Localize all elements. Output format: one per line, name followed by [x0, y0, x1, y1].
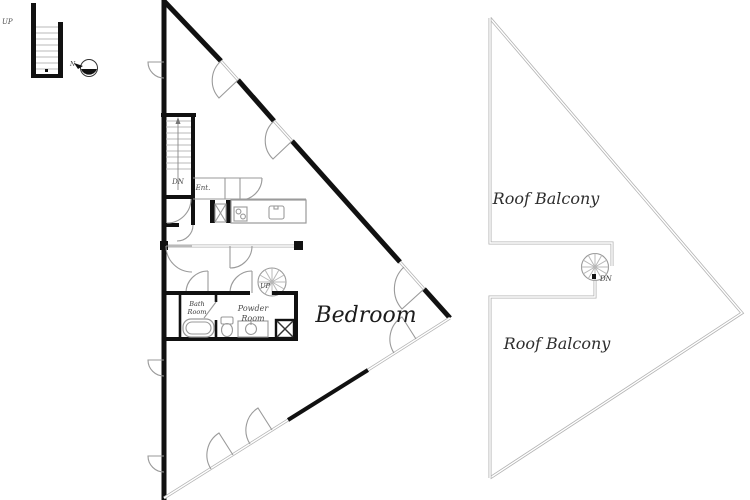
stair-door-arc [167, 199, 191, 223]
vanity-sink-icon [238, 321, 268, 337]
entrance-label: Ent. [195, 184, 211, 192]
roof-balcony-lower-label: Roof Balcony [503, 334, 612, 353]
kitchen-area [193, 199, 306, 223]
toilet-icon [221, 317, 233, 337]
legend-stair-treads [36, 27, 58, 69]
spiral-up-label: UP [260, 282, 270, 290]
roof-outline [490, 18, 742, 478]
bathroom-block: Bath Room Powder Room [162, 291, 298, 341]
bedroom-label: Bedroom [314, 303, 416, 328]
duct-shaft-icon [215, 204, 226, 222]
powder-room-label-2: Room [240, 314, 265, 323]
legend-stair: UP [2, 3, 63, 78]
shaft-icon [276, 320, 294, 338]
north-arrow-icon: N [69, 60, 98, 77]
bath-room-label-2: Room [187, 308, 207, 316]
window-swing-arcs [148, 61, 424, 472]
floor-plan-drawing: UP N [0, 0, 750, 500]
powder-room-label-1: Powder [237, 304, 270, 313]
bath-room-label-1: Bath [188, 300, 204, 308]
roof-balcony-upper-label: Roof Balcony [492, 189, 601, 208]
window-walls [164, 61, 450, 498]
floor-plan-sheet: UP N [0, 0, 750, 500]
north-label: N [69, 61, 76, 68]
stair-dn-label: DN [171, 178, 185, 186]
spiral-dn-label: DN [599, 275, 613, 283]
legend-stair-up-label: UP [2, 18, 13, 26]
exterior-walls [164, 0, 450, 500]
spiral-staircase-down: DN [582, 254, 613, 284]
upper-floor-plan: DN Ent. [148, 0, 450, 500]
corridor-doors [166, 246, 252, 293]
bathtub-icon [183, 319, 214, 337]
vestibule-door-arc [177, 225, 193, 241]
entrance-door-arc [240, 178, 262, 200]
stair-treads [166, 121, 191, 169]
roof-floor-plan: DN Roof Balcony Roof Balcony [490, 18, 742, 478]
entrance-area: Ent. [193, 178, 262, 200]
